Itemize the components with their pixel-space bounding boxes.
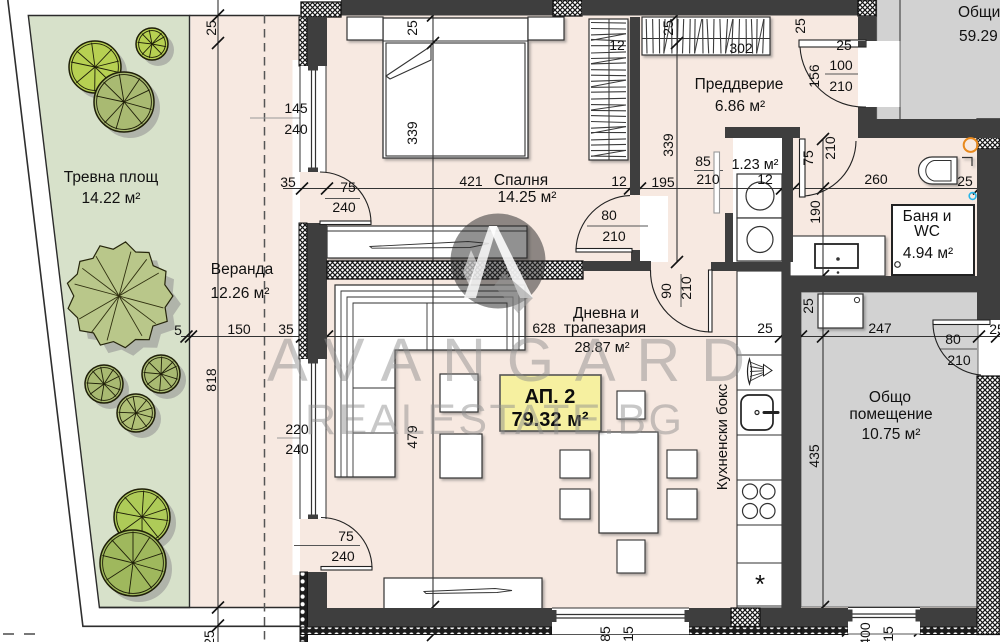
- svg-text:190: 190: [807, 200, 823, 224]
- svg-text:260: 260: [864, 171, 888, 187]
- svg-text:Общи части: Общи части: [958, 4, 1000, 21]
- svg-text:85: 85: [597, 626, 613, 642]
- svg-text:15: 15: [880, 626, 896, 642]
- svg-text:25: 25: [800, 298, 816, 314]
- svg-text:25: 25: [792, 18, 808, 34]
- svg-text:Спалня: Спалня: [494, 172, 548, 189]
- svg-text:90: 90: [658, 283, 674, 299]
- svg-text:100: 100: [829, 57, 853, 73]
- svg-text:818: 818: [203, 368, 219, 392]
- svg-text:210: 210: [696, 171, 720, 187]
- svg-text:*: *: [755, 569, 765, 599]
- svg-text:240: 240: [331, 548, 355, 564]
- svg-text:210: 210: [829, 78, 853, 94]
- svg-text:75: 75: [800, 150, 816, 166]
- svg-text:6.86 м²: 6.86 м²: [715, 98, 765, 115]
- svg-text:помещение: помещение: [849, 406, 932, 423]
- svg-text:85: 85: [695, 153, 711, 169]
- svg-text:25: 25: [203, 20, 219, 36]
- svg-text:25: 25: [201, 630, 217, 642]
- svg-text:240: 240: [332, 199, 356, 215]
- svg-text:80: 80: [601, 207, 617, 223]
- svg-text:12: 12: [611, 173, 627, 189]
- svg-text:14.25 м²: 14.25 м²: [498, 189, 557, 206]
- svg-text:Общо: Общо: [869, 389, 911, 406]
- svg-text:12: 12: [757, 171, 773, 187]
- svg-text:25: 25: [757, 320, 773, 336]
- svg-text:5: 5: [174, 322, 182, 338]
- svg-text:Тревна площ: Тревна площ: [64, 169, 159, 186]
- svg-text:25: 25: [404, 20, 420, 36]
- svg-text:WC: WC: [914, 223, 940, 240]
- svg-text:25: 25: [989, 321, 1000, 337]
- svg-text:75: 75: [338, 528, 354, 544]
- svg-text:Кухненски бокс: Кухненски бокс: [714, 383, 731, 490]
- svg-text:240: 240: [284, 121, 308, 137]
- svg-text:210: 210: [602, 228, 626, 244]
- svg-text:150: 150: [227, 321, 251, 337]
- svg-text:339: 339: [404, 121, 420, 145]
- svg-text:35: 35: [280, 174, 296, 190]
- svg-text:AVANGARD: AVANGARD: [267, 326, 745, 394]
- svg-text:210: 210: [947, 352, 971, 368]
- svg-text:302: 302: [729, 40, 753, 56]
- svg-text:339: 339: [660, 133, 676, 157]
- svg-text:80: 80: [945, 331, 961, 347]
- svg-text:14.22 м²: 14.22 м²: [82, 190, 141, 207]
- svg-text:25: 25: [836, 37, 852, 53]
- svg-text:12.26 м²: 12.26 м²: [211, 285, 270, 302]
- svg-text:156: 156: [806, 64, 822, 88]
- svg-text:4.94 м²: 4.94 м²: [903, 245, 953, 262]
- svg-text:25: 25: [957, 173, 973, 189]
- svg-text:210: 210: [678, 276, 694, 300]
- svg-text:195: 195: [651, 174, 675, 190]
- svg-text:75: 75: [340, 179, 356, 195]
- svg-text:421: 421: [459, 173, 483, 189]
- svg-text:Преддверие: Преддверие: [695, 76, 784, 93]
- svg-text:435: 435: [806, 444, 822, 468]
- svg-text:25: 25: [660, 20, 676, 36]
- svg-text:REALESTATE.BG: REALESTATE.BG: [305, 396, 682, 444]
- svg-text:12: 12: [609, 37, 625, 53]
- svg-text:145: 145: [284, 100, 308, 116]
- svg-text:Веранда: Веранда: [211, 261, 274, 278]
- svg-text:400: 400: [857, 622, 873, 642]
- svg-text:59.29 м²: 59.29 м²: [959, 28, 1000, 45]
- svg-text:15: 15: [620, 626, 636, 642]
- svg-text:247: 247: [868, 320, 892, 336]
- svg-text:10.75 м²: 10.75 м²: [862, 426, 921, 443]
- svg-text:210: 210: [822, 136, 838, 160]
